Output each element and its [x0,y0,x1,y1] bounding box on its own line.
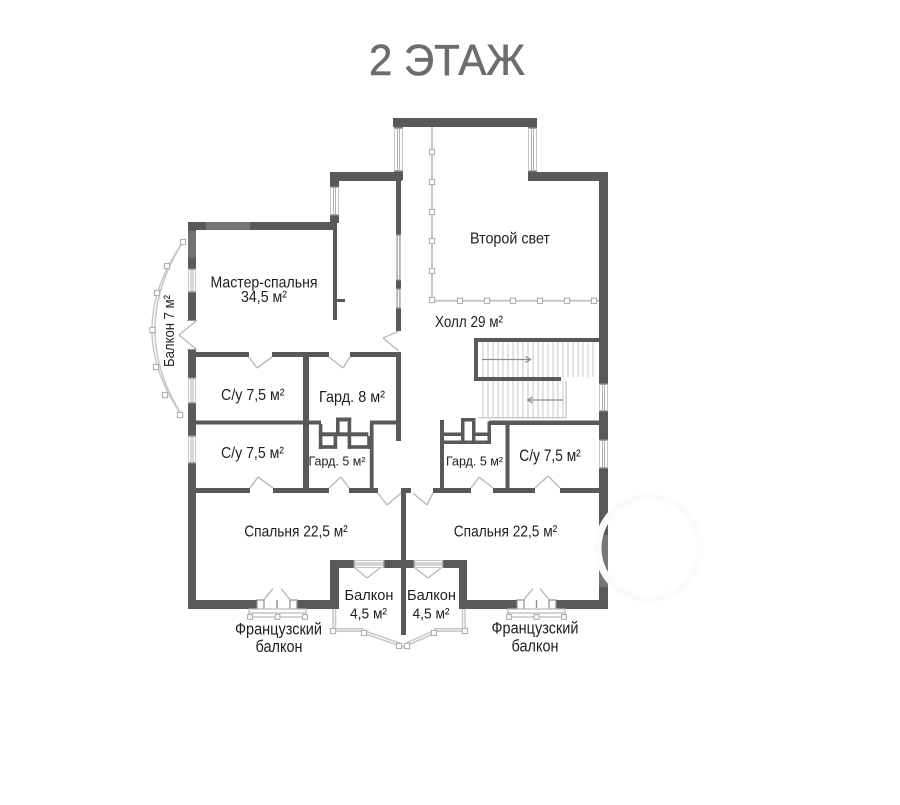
svg-text:Второй свет: Второй свет [470,231,551,248]
svg-text:балкон: балкон [512,638,559,656]
svg-text:Гард. 5 м²: Гард. 5 м² [309,454,367,469]
svg-text:34,5 м²: 34,5 м² [241,289,288,306]
svg-text:С/у 7,5 м²: С/у 7,5 м² [519,447,581,465]
svg-text:Спальня 22,5 м²: Спальня 22,5 м² [454,524,558,541]
svg-text:Балкон: Балкон [345,587,394,604]
svg-text:Гард. 8 м²: Гард. 8 м² [319,389,386,406]
svg-text:Балкон: Балкон [407,587,456,604]
svg-text:Французский: Французский [235,621,322,639]
svg-text:Холл 29 м²: Холл 29 м² [435,314,504,331]
svg-text:Французский: Французский [492,620,579,638]
svg-text:2 ЭТАЖ: 2 ЭТАЖ [369,36,525,85]
svg-text:балкон: балкон [256,638,303,656]
svg-text:Балкон 7 м²: Балкон 7 м² [161,295,178,367]
svg-text:4,5 м²: 4,5 м² [413,606,450,623]
svg-text:С/у 7,5 м²: С/у 7,5 м² [221,445,285,462]
svg-text:4,5 м²: 4,5 м² [350,606,387,623]
svg-text:Спальня 22,5 м²: Спальня 22,5 м² [244,524,348,541]
svg-text:Гард. 5 м²: Гард. 5 м² [446,454,504,469]
svg-text:С/у 7,5 м²: С/у 7,5 м² [221,387,285,404]
